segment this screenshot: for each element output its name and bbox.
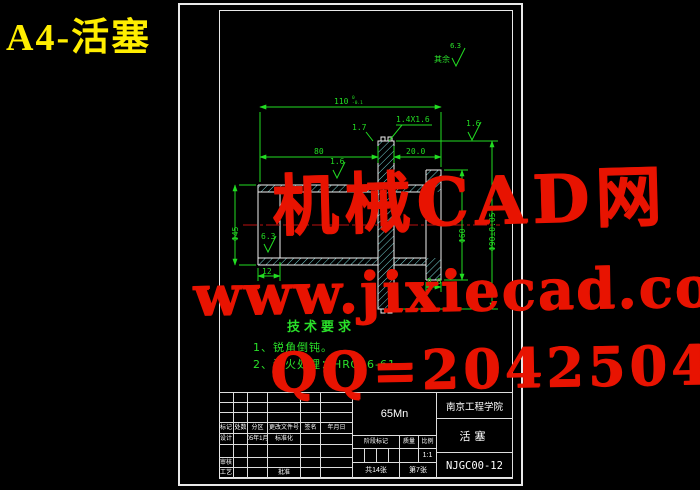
revision-cell — [219, 393, 234, 403]
revision-cell — [248, 413, 268, 423]
review-cell — [321, 458, 353, 468]
design-cell: 设计 — [219, 434, 234, 445]
stage-label-cell: 阶段标记 — [353, 436, 400, 449]
design-cell: 05年1月 — [248, 434, 268, 445]
empty-cell — [234, 445, 248, 458]
dim-ring-width: 8.0 — [427, 278, 441, 286]
revision-cell — [219, 413, 234, 423]
header-cell: 年月日 — [321, 423, 353, 434]
revision-cell — [268, 413, 301, 423]
design-cell — [301, 434, 321, 445]
revision-cell — [321, 403, 353, 413]
review-cell — [234, 458, 248, 468]
title-block-right: 南京工程学院 活塞 NJGC00-12 — [437, 393, 513, 479]
dim-overall-tol-dn: -0.1 — [352, 101, 363, 106]
revision-cell — [301, 393, 321, 403]
design-cell — [234, 434, 248, 445]
sheet-title-label: A4-活塞 — [6, 6, 151, 61]
school-name-cell: 南京工程学院 — [437, 393, 513, 419]
process-cell — [234, 468, 248, 479]
sheet-index-cell: 第7张 — [400, 463, 437, 479]
dim-od-left: Φ45 — [232, 227, 240, 241]
weight-value-cell — [400, 449, 419, 463]
revision-cell — [301, 413, 321, 423]
scale-label-cell: 比例 — [419, 436, 437, 449]
header-cell: 签名 — [301, 423, 321, 434]
dim-end-width: 12 — [262, 268, 272, 276]
revision-cell — [268, 393, 301, 403]
revision-cell — [234, 403, 248, 413]
stage-box — [365, 449, 377, 463]
empty-cell — [321, 445, 353, 458]
sheet-total-cell: 共14张 — [353, 463, 400, 479]
stage-box — [353, 449, 365, 463]
ra-top-label: 1.6 — [330, 158, 344, 166]
header-cell: 分区 — [248, 423, 268, 434]
cad-screenshot: A4-活塞 — [0, 0, 700, 490]
dim-chamfer: 1.4X1.6 — [396, 116, 430, 124]
rest-surfaces-value: 6.3 — [450, 42, 461, 50]
process-cell — [301, 468, 321, 479]
revision-cell — [321, 413, 353, 423]
process-cell — [248, 468, 268, 479]
scale-value-cell: 1:1 — [419, 449, 437, 463]
design-cell: 标准化 — [268, 434, 301, 445]
empty-cell — [268, 445, 301, 458]
process-cell: 批准 — [268, 468, 301, 479]
review-cell: 审核 — [219, 458, 234, 468]
process-cell: 工艺 — [219, 468, 234, 479]
revision-cell — [301, 403, 321, 413]
revision-cell — [234, 393, 248, 403]
review-cell — [248, 458, 268, 468]
empty-cell — [219, 445, 234, 458]
header-cell: 处数 — [234, 423, 248, 434]
title-block: 标记 处数 分区 更改文件号 签名 年月日 设计 05年1月 标准化 — [219, 392, 513, 478]
drawing-number-cell: NJGC00-12 — [437, 453, 513, 479]
revision-cell — [268, 403, 301, 413]
header-cell: 标记 — [219, 423, 234, 434]
dim-od-flange: Φ90±0.05 — [489, 212, 497, 251]
stage-box — [389, 449, 400, 463]
revision-cell — [248, 393, 268, 403]
revision-cell — [219, 403, 234, 413]
material-cell: 65Mn — [353, 393, 437, 436]
title-block-left-table: 标记 处数 分区 更改文件号 签名 年月日 设计 05年1月 标准化 — [219, 393, 353, 479]
title-block-middle: 65Mn 阶段标记 质量 比例 1:1 共14张 第7张 — [353, 393, 437, 479]
dim-od-right: Φ60 — [459, 229, 467, 243]
dim-groove-depth: 1.7 — [352, 124, 366, 132]
review-cell — [301, 458, 321, 468]
dim-left-length: 80 — [314, 148, 324, 156]
process-cell — [321, 468, 353, 479]
header-cell: 更改文件号 — [268, 423, 301, 434]
dim-overall: 110 — [334, 98, 348, 106]
part-name-cell: 活塞 — [437, 419, 513, 453]
stage-box — [377, 449, 389, 463]
rest-surfaces-label: 其余 — [434, 54, 450, 65]
revision-cell — [248, 403, 268, 413]
tech-requirement-item: 1、锐角倒钝。 — [253, 339, 333, 355]
empty-cell — [248, 445, 268, 458]
weight-label-cell: 质量 — [400, 436, 419, 449]
empty-cell — [301, 445, 321, 458]
tech-requirements-title: 技术要求 — [287, 316, 355, 335]
ra-right-label: 1.6 — [466, 120, 480, 128]
design-cell — [321, 434, 353, 445]
review-cell — [268, 458, 301, 468]
revision-cell — [234, 413, 248, 423]
ra-bore-label: 6.3 — [261, 233, 275, 241]
revision-cell — [321, 393, 353, 403]
dim-right-length: 20.0 — [406, 148, 425, 156]
tech-requirement-item: 2、淬火处理：HRC56-61 — [253, 356, 396, 372]
